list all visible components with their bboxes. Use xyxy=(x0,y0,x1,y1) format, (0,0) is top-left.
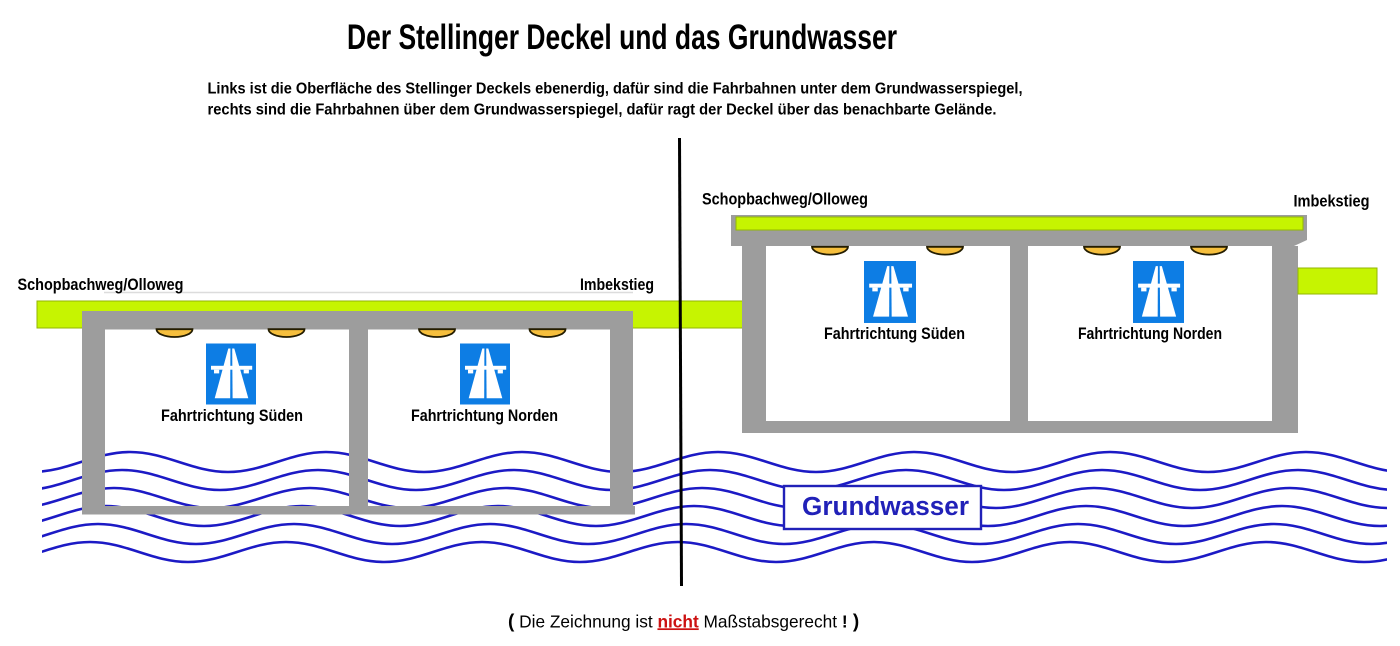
svg-text:Schopbachweg/Olloweg: Schopbachweg/Olloweg xyxy=(18,275,184,294)
svg-text:Fahrtrichtung Norden: Fahrtrichtung Norden xyxy=(1078,324,1222,343)
svg-text:Schopbachweg/Olloweg: Schopbachweg/Olloweg xyxy=(702,190,868,209)
svg-text:Imbekstieg: Imbekstieg xyxy=(580,275,654,294)
svg-text:Imbekstieg: Imbekstieg xyxy=(1294,192,1370,211)
svg-text:Grundwasser: Grundwasser xyxy=(802,493,969,521)
svg-text:Links ist die Oberfläche des S: Links ist die Oberfläche des Stellinger … xyxy=(208,81,1023,98)
svg-text:Fahrtrichtung Norden: Fahrtrichtung Norden xyxy=(411,406,558,425)
svg-text:Der Stellinger Deckel und das: Der Stellinger Deckel und das Grundwasse… xyxy=(347,17,897,57)
svg-text:( Die Zeichnung ist nicht Maßs: ( Die Zeichnung ist nicht Maßstabsgerech… xyxy=(508,611,859,632)
svg-text:Fahrtrichtung Süden: Fahrtrichtung Süden xyxy=(824,324,965,343)
svg-text:Fahrtrichtung Süden: Fahrtrichtung Süden xyxy=(161,406,303,425)
svg-text:rechts sind die Fahrbahnen übe: rechts sind die Fahrbahnen über dem Grun… xyxy=(208,102,997,119)
